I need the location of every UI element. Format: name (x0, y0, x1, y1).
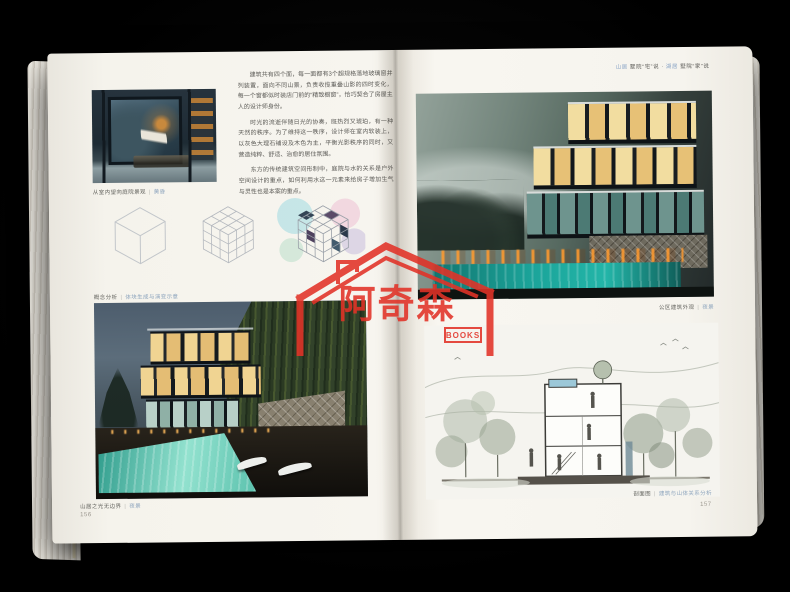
caption-concept: 概念分析 | 体块生成与演变示意 (94, 292, 179, 301)
concept-cube-diagram (95, 197, 366, 290)
caption-divider: | (654, 491, 656, 497)
caption-exterior: 公区建筑外观 | 夜景 (570, 303, 714, 313)
cube-wireframe-grid (203, 206, 254, 263)
pine-silhouettes (417, 179, 524, 250)
paragraph-3: 东方的传统建筑空间形制中，庭院与水的关系是户外空间设计的重点，如何利用水这一元素… (239, 164, 394, 198)
watercolor-section-drawing (424, 323, 720, 500)
section-sketch (424, 323, 720, 500)
caption-label: 从室内望向庭院景观 (93, 188, 146, 197)
house-floor-top (150, 331, 251, 365)
house-box-middle (533, 145, 697, 190)
caption-sub: 体块生成与演变示意 (125, 292, 178, 301)
caption-label: 概念分析 (94, 293, 118, 301)
birds (454, 339, 688, 359)
open-spread: 从室内望向庭院景观 | 黄昏 建筑共有四个面，每一面都有3个超规格落地玻璃窗并列… (47, 46, 757, 543)
header-blue: 山居 (616, 65, 628, 71)
paragraph-1: 建筑共有四个面，每一面都有3个超规格落地玻璃窗并列装置，面向不同山景，负责收揽重… (238, 69, 393, 113)
conifer-tree (97, 367, 138, 430)
caption-divider: | (124, 504, 126, 510)
house-box-base (526, 189, 704, 238)
house-floor-middle (141, 365, 261, 399)
caption-divider: | (697, 305, 699, 311)
caption-interior: 从室内望向庭院景观 | 黄昏 (93, 187, 166, 196)
reflecting-pool (432, 262, 681, 289)
caption-divider: | (149, 190, 151, 196)
caption-sub: 夜景 (129, 502, 141, 510)
caption-label: 剖面图 (633, 489, 651, 497)
page-number-right: 157 (700, 502, 712, 508)
photo-background: 从室内望向庭院景观 | 黄昏 建筑共有四个面，每一面都有3个超规格落地玻璃窗并列… (0, 0, 790, 592)
chapter-header: 山居 墅院“宅”说 · 湖居 墅院“家”说 (567, 62, 709, 71)
caption-villa-night: 山居之光无边界 | 夜景 (80, 502, 141, 511)
caption-label: 公区建筑外观 (659, 303, 694, 311)
ground-line (442, 475, 710, 489)
hillside-house-photo (416, 91, 714, 300)
page-number-left: 156 (80, 512, 92, 518)
body-text: 建筑共有四个面，每一面都有3个超规格落地玻璃窗并列装置，面向不同山景，负责收揽重… (238, 69, 394, 203)
paragraph-2: 时光的流逝伴随日光的协奏，既热烈又琥珀，有一种天然的秩序。为了维持这一秩序，设计… (238, 117, 393, 161)
book-spread: 从室内望向庭院景观 | 黄昏 建筑共有四个面，每一面都有3个超规格落地玻璃窗并列… (25, 46, 764, 566)
building-section (528, 361, 633, 477)
tree-wash-left (435, 391, 516, 478)
caption-sub: 建筑与山体关系分析 (659, 489, 712, 498)
caption-label: 山居之光无边界 (80, 502, 121, 510)
caption-sub: 黄昏 (154, 187, 166, 195)
tree-wash-right (623, 398, 713, 478)
interior-dusk-photo (92, 89, 217, 183)
header-dark: 墅院“家”说 (680, 64, 709, 70)
header-blue: 湖居 (666, 64, 678, 70)
header-dark: 墅院“宅”说 (630, 64, 659, 70)
cube-collage (277, 197, 366, 262)
pool-villa-night-photo (94, 300, 368, 499)
house-box-top (568, 101, 696, 144)
cube-wireframe-1 (115, 207, 166, 264)
header-sep: · (661, 64, 664, 70)
spine-gutter-shadow (377, 50, 418, 540)
caption-sub: 夜景 (702, 303, 714, 311)
stacked-glass-house (525, 101, 704, 243)
caption-divider: | (120, 295, 122, 301)
glass-house (140, 331, 261, 442)
window-frame (92, 89, 217, 183)
caption-section: 剖面图 | 建筑与山体关系分析 (552, 489, 712, 499)
terrace-edge (418, 286, 714, 299)
